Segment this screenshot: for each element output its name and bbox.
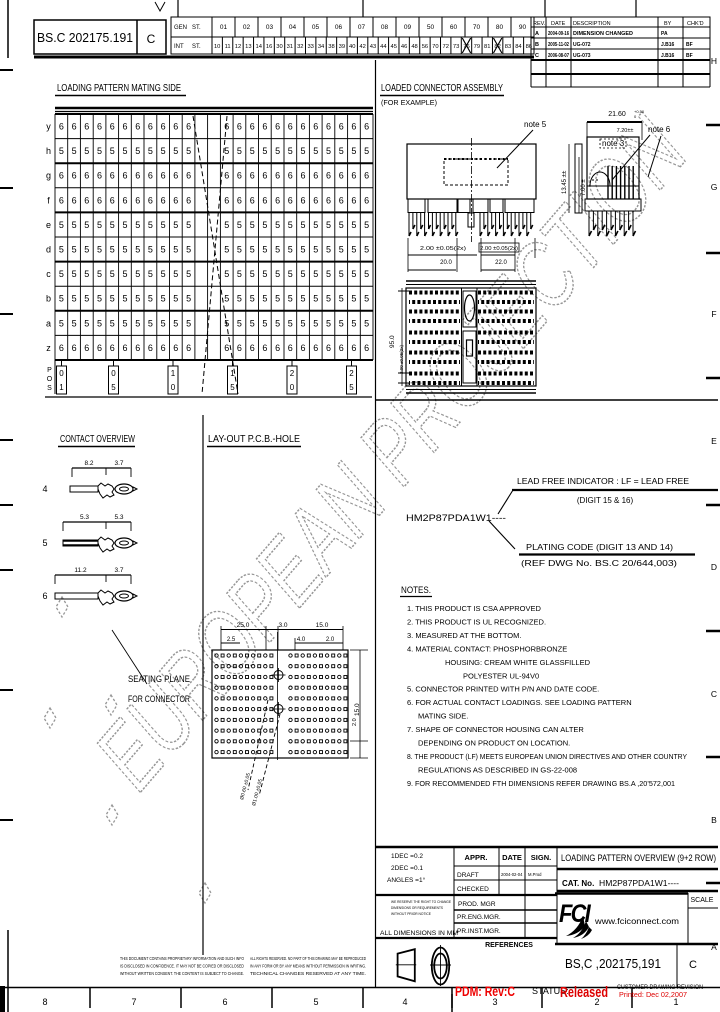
- svg-text:4: 4: [402, 997, 407, 1007]
- svg-text:5: 5: [351, 220, 356, 230]
- svg-text:CAT. No.: CAT. No.: [562, 879, 594, 888]
- svg-text:6: 6: [110, 122, 115, 132]
- svg-text:8.2: 8.2: [84, 460, 93, 467]
- svg-text:11: 11: [225, 44, 231, 50]
- svg-text:HOUSING: CREAM WHITE GLASSFILL: HOUSING: CREAM WHITE GLASSFILLED: [445, 658, 591, 667]
- svg-text:5: 5: [288, 318, 293, 328]
- svg-text:2004-09-16: 2004-09-16: [548, 31, 569, 37]
- svg-text:5: 5: [237, 220, 242, 230]
- svg-text:11.2: 11.2: [74, 567, 87, 574]
- svg-text:5: 5: [364, 220, 369, 230]
- svg-text:5: 5: [122, 294, 127, 304]
- svg-text:5: 5: [161, 245, 166, 255]
- svg-text:BF: BF: [686, 42, 693, 48]
- svg-text:6: 6: [326, 195, 331, 205]
- svg-text:73: 73: [453, 44, 459, 50]
- svg-text:DIMENSIONS OR REQUIREMENTS: DIMENSIONS OR REQUIREMENTS: [391, 905, 443, 910]
- svg-text:5: 5: [173, 220, 178, 230]
- svg-text:E: E: [711, 436, 717, 446]
- svg-text:HM2P87PDA1W1----: HM2P87PDA1W1----: [599, 879, 679, 888]
- svg-text:5: 5: [237, 294, 242, 304]
- svg-text:ST.: ST.: [192, 44, 201, 50]
- svg-text:16: 16: [266, 44, 272, 50]
- svg-text:34: 34: [318, 44, 325, 50]
- svg-text:15.0: 15.0: [316, 622, 329, 629]
- svg-text:20.0: 20.0: [440, 260, 452, 266]
- svg-text:5: 5: [59, 318, 64, 328]
- svg-text:www.fciconnect.com: www.fciconnect.com: [594, 916, 679, 926]
- svg-text:5: 5: [275, 245, 280, 255]
- svg-text:DRAFT: DRAFT: [457, 872, 479, 879]
- svg-text:7. SHAPE OF CONNECTOR HOUSING: 7. SHAPE OF CONNECTOR HOUSING CAN ALTER: [407, 725, 584, 734]
- svg-text:TECHNICAL CHANGES RESERVED AT: TECHNICAL CHANGES RESERVED AT ANY TIME.: [250, 971, 366, 976]
- svg-text:5: 5: [97, 318, 102, 328]
- svg-text:5: 5: [148, 269, 153, 279]
- svg-text:5: 5: [224, 294, 229, 304]
- svg-text:5: 5: [122, 245, 127, 255]
- svg-text:6: 6: [161, 171, 166, 181]
- svg-text:5: 5: [313, 269, 318, 279]
- svg-text:05: 05: [312, 24, 320, 31]
- svg-text:5: 5: [72, 220, 77, 230]
- svg-text:5: 5: [300, 245, 305, 255]
- svg-text:6: 6: [351, 122, 356, 132]
- svg-text:5: 5: [97, 146, 102, 156]
- svg-text:6: 6: [122, 343, 127, 353]
- svg-text:5: 5: [97, 294, 102, 304]
- svg-text:7.20±±: 7.20±±: [617, 128, 634, 134]
- svg-text:6: 6: [72, 343, 77, 353]
- svg-text:LOADED CONNECTOR ASSEMBLY: LOADED CONNECTOR ASSEMBLY: [381, 83, 503, 94]
- svg-text:6: 6: [59, 122, 64, 132]
- svg-text:7: 7: [131, 997, 136, 1007]
- svg-text:6: 6: [186, 171, 191, 181]
- svg-text:5: 5: [59, 245, 64, 255]
- svg-text:03: 03: [266, 24, 274, 31]
- svg-text:5: 5: [326, 245, 331, 255]
- svg-text:4. MATERIAL CONTACT: PHOSPHORB: 4. MATERIAL CONTACT: PHOSPHORBRONZE: [407, 644, 567, 653]
- svg-text:5: 5: [59, 269, 64, 279]
- svg-text:6: 6: [300, 343, 305, 353]
- svg-text:5: 5: [135, 269, 140, 279]
- svg-text:5: 5: [364, 318, 369, 328]
- svg-text:5: 5: [224, 220, 229, 230]
- svg-text:2.5: 2.5: [227, 637, 236, 643]
- svg-text:21.60: 21.60: [608, 111, 626, 118]
- svg-text:2. THIS PRODUCT IS UL RECOGNIZ: 2. THIS PRODUCT IS UL RECOGNIZED.: [407, 617, 546, 626]
- svg-text:9. FOR RECOMMENDED FTH DIMENSI: 9. FOR RECOMMENDED FTH DIMENSIONS REFER …: [407, 779, 675, 788]
- svg-text:6: 6: [237, 343, 242, 353]
- svg-text:6: 6: [161, 122, 166, 132]
- svg-text:5: 5: [339, 146, 344, 156]
- svg-text:REGULATIONS AS DESCRIBED IN GS: REGULATIONS AS DESCRIBED IN GS-22-008: [418, 765, 577, 774]
- svg-text:5: 5: [110, 220, 115, 230]
- svg-text:07: 07: [358, 24, 366, 31]
- svg-text:5: 5: [135, 245, 140, 255]
- svg-text:6: 6: [72, 195, 77, 205]
- svg-text:5: 5: [72, 294, 77, 304]
- svg-text:5: 5: [326, 220, 331, 230]
- svg-text:04: 04: [289, 24, 297, 31]
- svg-text:42: 42: [359, 44, 365, 50]
- svg-text:5: 5: [250, 294, 255, 304]
- svg-text:95.0: 95.0: [389, 335, 396, 348]
- svg-text:z: z: [46, 343, 51, 353]
- svg-text:14: 14: [256, 44, 263, 50]
- svg-text:F: F: [711, 309, 716, 319]
- svg-text:5: 5: [224, 269, 229, 279]
- svg-text:5: 5: [148, 318, 153, 328]
- svg-text:PR.ENG.MGR.: PR.ENG.MGR.: [457, 914, 501, 921]
- svg-text:31: 31: [287, 44, 293, 50]
- svg-text:48: 48: [411, 44, 417, 50]
- svg-text:note 6: note 6: [648, 125, 671, 134]
- svg-text:6: 6: [135, 122, 140, 132]
- svg-text:13: 13: [245, 44, 251, 50]
- svg-text:6: 6: [262, 195, 267, 205]
- svg-text:5: 5: [72, 269, 77, 279]
- svg-text:2.00 ±0.05(2x): 2.00 ±0.05(2x): [420, 246, 466, 252]
- svg-text:5: 5: [110, 294, 115, 304]
- svg-text:1: 1: [230, 369, 235, 378]
- svg-text:6: 6: [72, 122, 77, 132]
- svg-text:5: 5: [224, 146, 229, 156]
- svg-text:IS DISCLOSED IN CONFIDENCE. IT: IS DISCLOSED IN CONFIDENCE. IT MAY NOT B…: [120, 964, 244, 969]
- svg-text:5: 5: [262, 146, 267, 156]
- svg-text:C: C: [147, 32, 156, 46]
- svg-text:6: 6: [262, 122, 267, 132]
- svg-text:6: 6: [288, 343, 293, 353]
- svg-text:5: 5: [262, 269, 267, 279]
- svg-text:6: 6: [97, 171, 102, 181]
- svg-text:6: 6: [222, 997, 227, 1007]
- svg-text:6: 6: [148, 171, 153, 181]
- svg-text:WITHOUT PRIOR NOTICE: WITHOUT PRIOR NOTICE: [391, 911, 431, 916]
- svg-text:1: 1: [59, 383, 64, 392]
- svg-text:5: 5: [300, 220, 305, 230]
- svg-text:5: 5: [339, 269, 344, 279]
- svg-text:5: 5: [122, 318, 127, 328]
- svg-text:5: 5: [300, 294, 305, 304]
- svg-text:0: 0: [171, 383, 176, 392]
- svg-text:5.3: 5.3: [80, 514, 89, 521]
- svg-text:J.B16: J.B16: [661, 53, 675, 59]
- svg-text:(REF DWG No. BS.C 20/644,003): (REF DWG No. BS.C 20/644,003): [521, 559, 677, 568]
- svg-text:2.00 ±0.05(2x): 2.00 ±0.05(2x): [399, 345, 404, 374]
- svg-text:6: 6: [161, 343, 166, 353]
- svg-text:5: 5: [262, 318, 267, 328]
- svg-text:5: 5: [84, 318, 89, 328]
- svg-text:PR.INST.MGR.: PR.INST.MGR.: [457, 928, 501, 935]
- svg-text:5: 5: [351, 146, 356, 156]
- svg-text:REFERENCES: REFERENCES: [485, 942, 533, 949]
- svg-text:6: 6: [326, 122, 331, 132]
- svg-text:5: 5: [161, 220, 166, 230]
- svg-text:UG-073: UG-073: [573, 53, 591, 59]
- svg-text:5: 5: [250, 269, 255, 279]
- svg-text:5: 5: [326, 318, 331, 328]
- svg-text:6: 6: [173, 122, 178, 132]
- svg-text:5: 5: [122, 269, 127, 279]
- svg-text:5: 5: [186, 318, 191, 328]
- svg-text:40: 40: [349, 44, 355, 50]
- svg-text:LAY-OUT P.C.B.-HOLE: LAY-OUT P.C.B.-HOLE: [208, 434, 300, 445]
- svg-text:DIMENSION CHANGED: DIMENSION CHANGED: [573, 31, 633, 37]
- svg-text:6: 6: [250, 343, 255, 353]
- svg-text:5: 5: [110, 146, 115, 156]
- svg-text:6: 6: [339, 171, 344, 181]
- svg-text:5: 5: [313, 318, 318, 328]
- svg-text:6: 6: [72, 171, 77, 181]
- svg-text:C: C: [711, 689, 717, 699]
- svg-text:6: 6: [300, 122, 305, 132]
- svg-text:6: 6: [313, 343, 318, 353]
- svg-text:SCALE: SCALE: [691, 897, 714, 904]
- svg-text:6: 6: [250, 195, 255, 205]
- svg-text:3. MEASURED AT THE BOTTOM.: 3. MEASURED AT THE BOTTOM.: [407, 631, 521, 640]
- svg-text:5: 5: [300, 318, 305, 328]
- svg-text:70: 70: [432, 44, 438, 50]
- svg-text:5: 5: [300, 146, 305, 156]
- svg-text:5: 5: [364, 146, 369, 156]
- svg-text:5: 5: [288, 245, 293, 255]
- svg-text:6: 6: [237, 171, 242, 181]
- svg-text:BF: BF: [686, 53, 693, 59]
- svg-text:6: 6: [97, 122, 102, 132]
- svg-text:b: b: [46, 294, 51, 304]
- svg-text:5: 5: [313, 146, 318, 156]
- svg-text:5: 5: [148, 146, 153, 156]
- svg-text:Released: Released: [560, 984, 608, 1001]
- svg-text:45: 45: [391, 44, 397, 50]
- svg-text:4: 4: [42, 484, 47, 494]
- svg-text:5: 5: [173, 318, 178, 328]
- svg-text:6: 6: [351, 343, 356, 353]
- svg-text:5: 5: [135, 146, 140, 156]
- svg-text:10: 10: [214, 44, 220, 50]
- svg-text:5: 5: [326, 294, 331, 304]
- svg-text:6: 6: [339, 122, 344, 132]
- svg-text:5: 5: [111, 383, 116, 392]
- svg-text:6: 6: [364, 195, 369, 205]
- svg-text:6: 6: [161, 195, 166, 205]
- svg-text:DESCRIPTION: DESCRIPTION: [573, 21, 611, 27]
- svg-text:5: 5: [288, 294, 293, 304]
- svg-text:25.0: 25.0: [237, 622, 250, 629]
- svg-text:5: 5: [173, 294, 178, 304]
- svg-text:7.00 ±: 7.00 ±: [581, 179, 587, 196]
- svg-text:6: 6: [186, 343, 191, 353]
- svg-text:1. THIS PRODUCT IS CSA APPROVE: 1. THIS PRODUCT IS CSA APPROVED: [407, 604, 542, 613]
- svg-text:5: 5: [173, 269, 178, 279]
- svg-text:6: 6: [313, 171, 318, 181]
- svg-text:5: 5: [161, 269, 166, 279]
- svg-text:BS.C 202175.191: BS.C 202175.191: [37, 31, 133, 45]
- svg-text:80: 80: [496, 24, 504, 31]
- svg-text:6: 6: [224, 122, 229, 132]
- svg-text:5: 5: [250, 245, 255, 255]
- svg-text:6: 6: [364, 122, 369, 132]
- svg-text:LOADING PATTERN OVERVIEW (9+2: LOADING PATTERN OVERVIEW (9+2 ROW): [561, 853, 716, 864]
- svg-text:6: 6: [262, 171, 267, 181]
- svg-text:44: 44: [380, 44, 387, 50]
- svg-text:6: 6: [135, 195, 140, 205]
- svg-text:A: A: [535, 31, 539, 37]
- svg-text:5: 5: [230, 383, 235, 392]
- svg-text:6: 6: [42, 591, 47, 601]
- svg-text:6: 6: [173, 195, 178, 205]
- svg-text:5: 5: [300, 269, 305, 279]
- svg-text:0: 0: [290, 383, 295, 392]
- svg-text:5: 5: [339, 318, 344, 328]
- svg-text:5: 5: [364, 269, 369, 279]
- svg-text:C: C: [689, 959, 697, 971]
- svg-text:2004-02-04: 2004-02-04: [501, 872, 523, 877]
- svg-text:2.00 ±0.05(2x): 2.00 ±0.05(2x): [480, 246, 518, 252]
- svg-text:6: 6: [275, 122, 280, 132]
- svg-text:5: 5: [351, 269, 356, 279]
- svg-text:5: 5: [161, 318, 166, 328]
- svg-text:5: 5: [339, 294, 344, 304]
- svg-text:DEPENDING ON PRODUCT ON LOCATI: DEPENDING ON PRODUCT ON LOCATION.: [418, 739, 570, 748]
- svg-text:2: 2: [349, 369, 354, 378]
- svg-text:6: 6: [84, 171, 89, 181]
- svg-text:C: C: [535, 53, 539, 59]
- svg-text:6: 6: [326, 343, 331, 353]
- svg-text:6: 6: [84, 195, 89, 205]
- svg-text:6: 6: [148, 343, 153, 353]
- svg-text:CONTACT OVERVIEW: CONTACT OVERVIEW: [60, 434, 135, 445]
- svg-text:y: y: [46, 122, 51, 132]
- svg-text:6: 6: [300, 171, 305, 181]
- svg-text:0: 0: [111, 369, 116, 378]
- svg-text:5: 5: [250, 318, 255, 328]
- svg-text:70: 70: [473, 24, 481, 31]
- svg-text:72: 72: [442, 44, 448, 50]
- svg-text:5: 5: [262, 220, 267, 230]
- svg-text:5: 5: [97, 245, 102, 255]
- svg-text:06: 06: [335, 24, 343, 31]
- svg-text:50: 50: [427, 24, 435, 31]
- svg-text:6: 6: [186, 122, 191, 132]
- svg-text:5: 5: [186, 294, 191, 304]
- svg-text:5: 5: [262, 294, 267, 304]
- svg-text:5: 5: [148, 245, 153, 255]
- svg-text:5: 5: [186, 269, 191, 279]
- svg-text:5: 5: [59, 294, 64, 304]
- svg-text:8. THE PRODUCT (LF) MEETS EURO: 8. THE PRODUCT (LF) MEETS EUROPEAN UNION…: [407, 752, 687, 761]
- svg-text:5: 5: [349, 383, 354, 392]
- svg-text:6: 6: [110, 343, 115, 353]
- svg-text:Printed: Dec 02,2007: Printed: Dec 02,2007: [619, 990, 687, 999]
- svg-text:5: 5: [84, 245, 89, 255]
- svg-text:6: 6: [173, 171, 178, 181]
- svg-text:M.Prod: M.Prod: [528, 872, 542, 877]
- svg-text:5: 5: [288, 220, 293, 230]
- svg-text:43: 43: [370, 44, 376, 50]
- svg-text:83: 83: [505, 44, 511, 50]
- svg-text:6: 6: [135, 171, 140, 181]
- svg-text:6: 6: [84, 343, 89, 353]
- svg-text:33: 33: [307, 44, 313, 50]
- svg-text:5: 5: [97, 269, 102, 279]
- svg-text:5: 5: [313, 997, 318, 1007]
- svg-text:02: 02: [243, 24, 251, 31]
- svg-text:13.45 ±±: 13.45 ±±: [562, 170, 568, 194]
- svg-text:6: 6: [288, 171, 293, 181]
- svg-text:5: 5: [173, 146, 178, 156]
- svg-text:5: 5: [97, 220, 102, 230]
- svg-text:2006-08-07: 2006-08-07: [548, 53, 569, 59]
- svg-text:5: 5: [135, 220, 140, 230]
- svg-text:5: 5: [250, 220, 255, 230]
- svg-text:PA: PA: [661, 31, 668, 37]
- svg-text:39: 39: [339, 44, 345, 50]
- svg-text:H: H: [711, 56, 717, 66]
- svg-text:79: 79: [474, 44, 480, 50]
- svg-text:5: 5: [173, 245, 178, 255]
- svg-text:LEAD FREE INDICATOR : LF = LE: LEAD FREE INDICATOR : LF = LEAD FREE: [517, 477, 689, 486]
- svg-text:5: 5: [84, 146, 89, 156]
- svg-text:6: 6: [339, 343, 344, 353]
- svg-text:5: 5: [275, 318, 280, 328]
- svg-text:g: g: [46, 171, 51, 181]
- svg-text:1: 1: [171, 369, 176, 378]
- svg-text:B: B: [711, 815, 717, 825]
- svg-text:2005-11-02: 2005-11-02: [548, 42, 569, 48]
- svg-text:6: 6: [275, 171, 280, 181]
- svg-text:6: 6: [122, 122, 127, 132]
- svg-text:B: B: [535, 42, 539, 48]
- svg-text:6: 6: [148, 122, 153, 132]
- svg-text:6: 6: [110, 171, 115, 181]
- svg-text:6: 6: [364, 171, 369, 181]
- svg-text:LOADING PATTERN MATING SIDE: LOADING PATTERN MATING SIDE: [57, 83, 181, 94]
- svg-text:6: 6: [148, 195, 153, 205]
- svg-text:5: 5: [110, 269, 115, 279]
- svg-text:38: 38: [328, 44, 334, 50]
- svg-text:e: e: [46, 220, 51, 230]
- svg-text:6: 6: [173, 343, 178, 353]
- svg-text:5: 5: [275, 294, 280, 304]
- svg-text:12: 12: [235, 44, 241, 50]
- svg-text:6: 6: [97, 195, 102, 205]
- svg-text:5: 5: [186, 245, 191, 255]
- svg-text:G: G: [711, 182, 718, 192]
- svg-text:MATING SIDE.: MATING SIDE.: [418, 712, 468, 721]
- svg-text:6: 6: [250, 122, 255, 132]
- svg-text:6: 6: [59, 171, 64, 181]
- svg-text:a: a: [46, 318, 51, 328]
- svg-text:5: 5: [72, 245, 77, 255]
- svg-text:NOTES.: NOTES.: [401, 585, 431, 595]
- svg-text:FOR CONNECTOR: FOR CONNECTOR: [128, 694, 190, 704]
- svg-text:6: 6: [59, 195, 64, 205]
- svg-text:6: 6: [351, 195, 356, 205]
- svg-text:2DEC =0.1: 2DEC =0.1: [391, 865, 423, 872]
- svg-text:5: 5: [313, 294, 318, 304]
- svg-text:6: 6: [313, 195, 318, 205]
- svg-text:(DIGIT 15 & 16): (DIGIT 15 & 16): [577, 496, 634, 505]
- svg-text:84: 84: [515, 44, 522, 50]
- svg-text:INT: INT: [174, 44, 184, 50]
- svg-text:THIS DOCUMENT CONTAINS PROPRIE: THIS DOCUMENT CONTAINS PROPRIETARY INFOR…: [120, 956, 245, 961]
- svg-text:90: 90: [519, 24, 527, 31]
- svg-text:DATE: DATE: [551, 21, 566, 27]
- svg-text:2.0: 2.0: [352, 718, 358, 726]
- svg-text:22.0: 22.0: [495, 260, 507, 266]
- svg-text:(FOR EXAMPLE): (FOR EXAMPLE): [381, 98, 437, 107]
